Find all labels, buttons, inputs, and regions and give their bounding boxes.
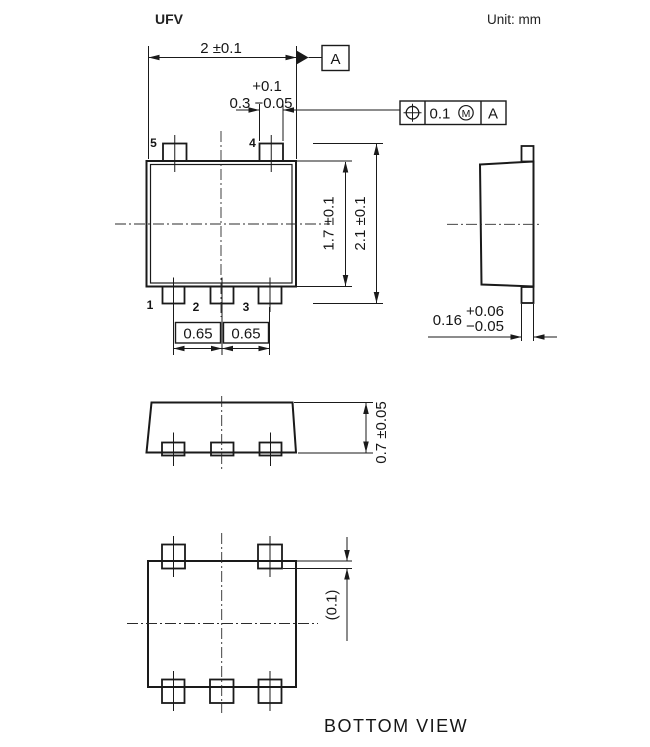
unit-label: Unit: mm [487,12,541,27]
arrowhead-icon [511,334,522,339]
fcf-tolerance: 0.1 [430,106,451,123]
dim-lead-width-plus-text: +0.1 [252,78,282,95]
pin-2-label: 2 [193,300,200,314]
pin-4-label: 4 [249,136,256,150]
arrowhead-icon [149,55,160,61]
side-view: 0.16 +0.06 −0.05 [428,146,557,341]
arrowhead-icon [211,346,222,352]
dim-body-length-text: 1.7 ±0.1 [321,196,338,250]
dim-pitch-left-text: 0.65 [183,326,212,343]
dim-pitch-right-text: 0.65 [231,326,260,343]
arrowhead-icon [363,442,369,453]
dim-lead-thickness-text: 0.16 [433,312,462,329]
dim-lead-end: (0.1) [283,537,352,641]
arrowhead-icon [344,550,350,561]
header: UFV Unit: mm [155,11,541,27]
pin-1-label: 1 [147,298,154,312]
pin-3-label: 3 [243,300,250,314]
pin-5-label: 5 [150,136,157,150]
dim-lead-end-text: (0.1) [324,590,341,621]
mmc-modifier-icon: M [459,106,473,120]
lead-2 [211,443,234,456]
arrowhead-icon [534,334,545,339]
position-symbol-icon [404,104,422,122]
arrowhead-icon [286,55,297,61]
dim-height: 0.7 ±0.05 [294,401,390,463]
dim-body-width-text: 2 ±0.1 [200,40,242,57]
arrowhead-icon [222,346,233,352]
drawing-sheet: UFV Unit: mm 5 4 1 2 3 2 ±0.1 [0,0,650,747]
lead-tab-top [522,146,534,162]
datum-label: A [330,51,340,68]
arrowhead-icon [343,162,349,173]
package-name: UFV [155,11,184,27]
arrowhead-icon [174,346,185,352]
front-view: 0.7 ±0.05 [147,396,391,469]
top-view: 5 4 1 2 3 [115,131,330,317]
arrowhead-icon [259,346,270,352]
feature-control-frame: 0.1 M A [400,101,506,125]
dim-lead-pitch: 0.65 0.65 [174,307,270,355]
dim-overall-length-text: 2.1 ±0.1 [352,196,369,250]
dim-lead-thickness-minus: −0.05 [466,318,504,335]
dim-lead-width-text: 0.3 −0.05 [230,95,293,112]
bottom-view: (0.1) BOTTOM VIEW [127,533,468,736]
bottom-view-caption: BOTTOM VIEW [324,716,468,736]
dim-lead-thickness: 0.16 +0.06 −0.05 [428,303,557,341]
package-outline-drawing: UFV Unit: mm 5 4 1 2 3 2 ±0.1 [0,0,650,747]
dim-lead-width: +0.1 0.3 −0.05 [230,78,400,141]
arrowhead-icon [374,292,380,303]
dim-height-text: 0.7 ±0.05 [373,401,390,463]
arrowhead-icon [374,144,380,155]
arrowhead-icon [343,275,349,286]
datum-triangle-icon [297,51,309,65]
lead-tab-bottom [522,287,534,303]
arrowhead-icon [363,403,369,414]
fcf-datum: A [488,106,498,123]
fcf-modifier: M [462,108,471,120]
arrowhead-icon [344,569,350,580]
